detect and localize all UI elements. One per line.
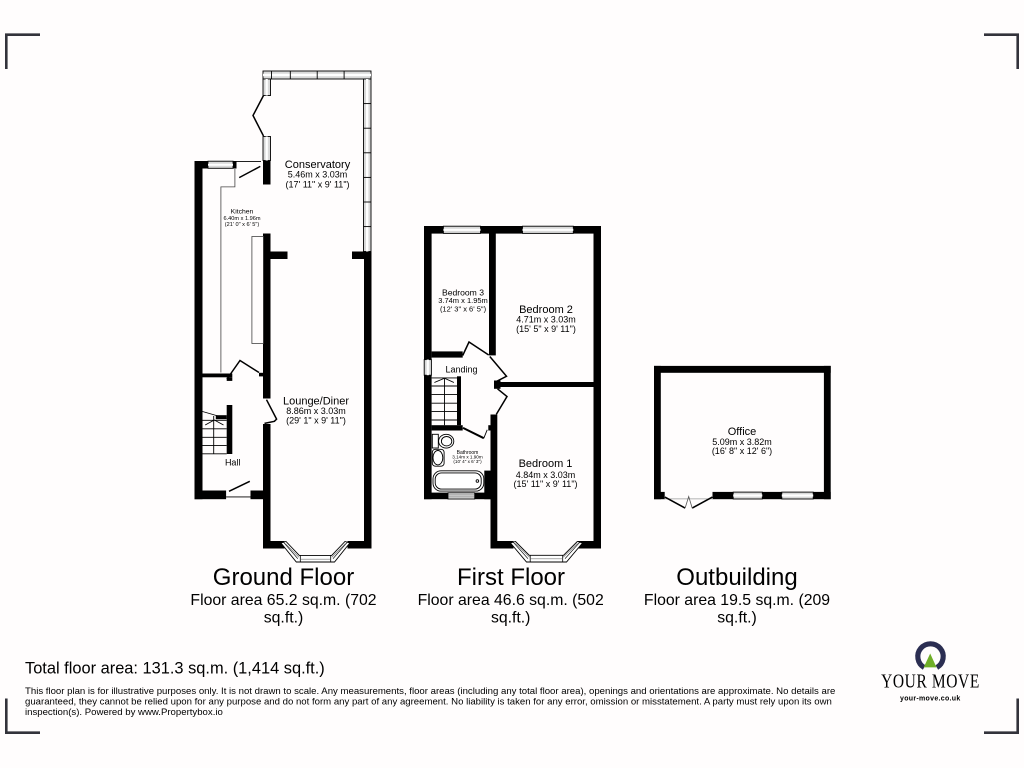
svg-text:(10' 4" x 6' 3"): (10' 4" x 6' 3") bbox=[453, 459, 482, 464]
svg-text:Kitchen: Kitchen bbox=[231, 209, 254, 216]
svg-text:sq.ft.): sq.ft.) bbox=[491, 610, 531, 627]
svg-text:(12' 3" x 6' 5"): (12' 3" x 6' 5") bbox=[440, 304, 487, 313]
svg-text:guaranteed, they cannot be rel: guaranteed, they cannot be relied upon f… bbox=[25, 696, 832, 707]
svg-text:This floor plan is for illustr: This floor plan is for illustrative purp… bbox=[25, 686, 835, 697]
svg-text:(16' 8" x 12' 6"): (16' 8" x 12' 6") bbox=[712, 446, 772, 456]
svg-text:(17' 11" x 9' 11"): (17' 11" x 9' 11") bbox=[285, 179, 349, 189]
svg-text:Landing: Landing bbox=[445, 365, 477, 375]
svg-text:(29' 1" x 9' 11"): (29' 1" x 9' 11") bbox=[286, 416, 346, 426]
svg-text:(15' 11" x 9' 11"): (15' 11" x 9' 11") bbox=[513, 479, 577, 489]
svg-text:Ground Floor: Ground Floor bbox=[213, 564, 354, 591]
svg-text:Floor area 19.5 sq.m. (209: Floor area 19.5 sq.m. (209 bbox=[644, 592, 830, 609]
svg-text:Hall: Hall bbox=[225, 458, 241, 468]
svg-text:Outbuilding: Outbuilding bbox=[676, 564, 797, 591]
svg-text:Total floor area: 131.3 sq.m.: Total floor area: 131.3 sq.m. (1,414 sq.… bbox=[25, 660, 325, 678]
svg-text:5.46m x 3.03m: 5.46m x 3.03m bbox=[288, 170, 348, 180]
svg-text:inspection(s). Powered by www.: inspection(s). Powered by www.Propertybo… bbox=[25, 707, 223, 718]
svg-text:Floor area 46.6 sq.m. (502: Floor area 46.6 sq.m. (502 bbox=[418, 592, 604, 609]
svg-text:your-move.co.uk: your-move.co.uk bbox=[900, 696, 961, 703]
svg-text:Bedroom 1: Bedroom 1 bbox=[519, 458, 573, 470]
svg-text:(15' 5" x 9' 11"): (15' 5" x 9' 11") bbox=[516, 324, 576, 334]
svg-text:(21' 0" x 6' 5"): (21' 0" x 6' 5") bbox=[225, 222, 260, 228]
svg-text:sq.ft.): sq.ft.) bbox=[717, 610, 757, 627]
svg-text:Floor area 65.2 sq.m. (702: Floor area 65.2 sq.m. (702 bbox=[190, 592, 376, 609]
svg-text:4.71m x 3.03m: 4.71m x 3.03m bbox=[516, 315, 576, 325]
svg-text:YOUR MOVE: YOUR MOVE bbox=[881, 670, 980, 692]
svg-text:First Floor: First Floor bbox=[457, 564, 565, 591]
svg-text:sq.ft.): sq.ft.) bbox=[264, 610, 304, 627]
